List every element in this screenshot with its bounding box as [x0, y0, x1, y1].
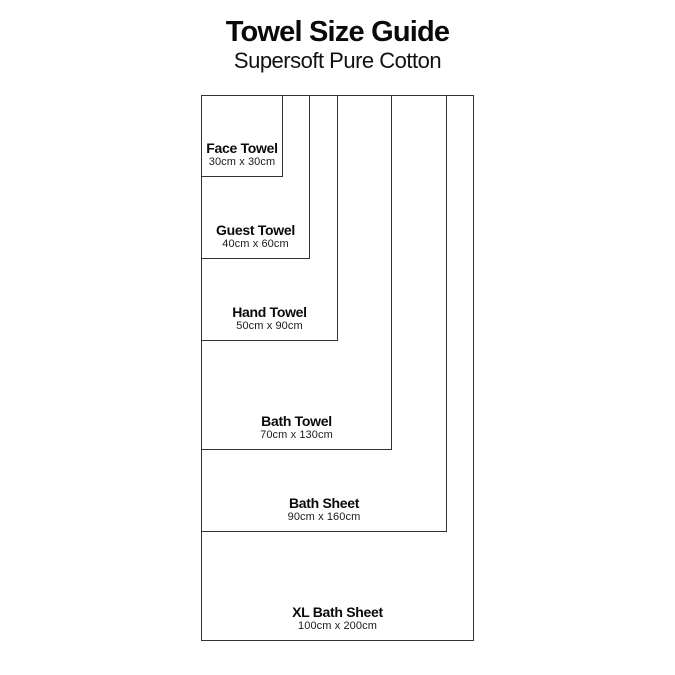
towel-dims-label: 70cm x 130cm: [260, 429, 333, 442]
towel-name-label: XL Bath Sheet: [292, 605, 383, 620]
towel-name-label: Hand Towel: [232, 305, 307, 320]
towel-name-label: Guest Towel: [216, 223, 295, 238]
towel-dims-label: 90cm x 160cm: [288, 511, 361, 524]
towel-dims-label: 100cm x 200cm: [298, 620, 377, 633]
towel-name-label: Bath Towel: [261, 414, 332, 429]
towel-dims-label: 30cm x 30cm: [209, 156, 276, 169]
towel-dims-label: 40cm x 60cm: [222, 238, 289, 251]
towel-name-label: Bath Sheet: [289, 496, 359, 511]
header: Towel Size Guide Supersoft Pure Cotton: [0, 16, 675, 74]
page-title: Towel Size Guide: [0, 16, 675, 48]
towel-dims-label: 50cm x 90cm: [236, 320, 303, 333]
towel-rect-face-towel: Face Towel30cm x 30cm: [201, 95, 283, 177]
towel-size-diagram: XL Bath Sheet100cm x 200cmBath Sheet90cm…: [201, 95, 475, 641]
towel-name-label: Face Towel: [206, 141, 277, 156]
page-subtitle: Supersoft Pure Cotton: [0, 48, 675, 74]
